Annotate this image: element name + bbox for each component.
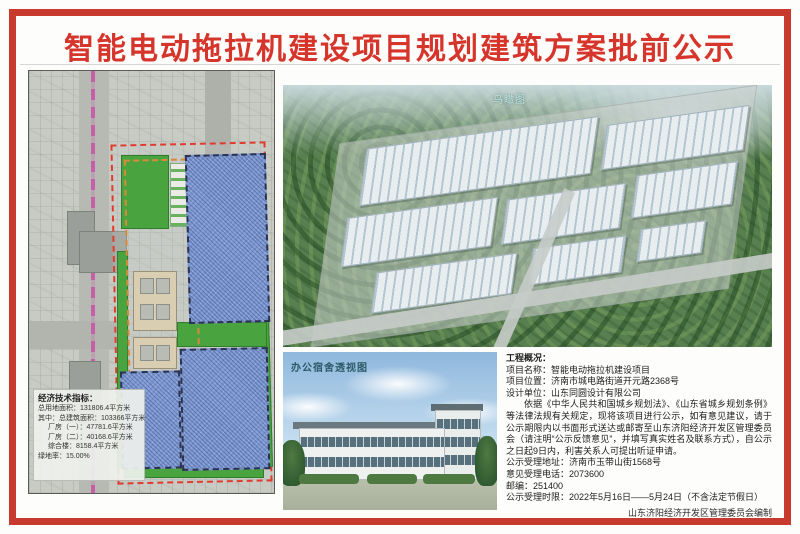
office-court-upper bbox=[133, 271, 177, 331]
factory-roof bbox=[631, 161, 738, 218]
issuing-authority: 山东济阳经济开发区管理委员会编制 bbox=[506, 507, 772, 519]
legend-line: 厂房（二）：40168.6平方米 bbox=[38, 433, 140, 443]
window-band bbox=[300, 437, 444, 447]
office-building bbox=[299, 428, 445, 480]
window-band bbox=[300, 457, 444, 467]
project-notice-text: 工程概况： 项目名称：智能电动拖拉机建设项目 项目位置：济南市城电路街道开元路2… bbox=[506, 353, 772, 519]
court-unit bbox=[140, 278, 154, 294]
aerial-label: 鸟瞰图 bbox=[493, 91, 526, 106]
legend-line: 总用地面积：131806.4平方米 bbox=[38, 404, 140, 414]
design-unit-line: 设计单位：山东同圆设计有限公司 bbox=[506, 388, 772, 400]
bush-row bbox=[299, 474, 359, 484]
notice-paragraph: 依据《中华人民共和国城乡规划法》、《山东省城乡规划条例》等法律法规有关规定，现将… bbox=[506, 399, 772, 457]
project-location-line: 项目位置：济南市城电路街道开元路2368号 bbox=[506, 376, 772, 388]
project-name-line: 项目名称：智能电动拖拉机建设项目 bbox=[506, 365, 772, 377]
court-unit bbox=[140, 304, 154, 320]
office-court-lower bbox=[133, 337, 177, 369]
legend-title: 经济技术指标： bbox=[38, 393, 140, 404]
phone-line: 意见受理电话：2073600 bbox=[506, 469, 772, 481]
legend-line: 其中：总建筑面积：103366平方米 bbox=[38, 414, 140, 424]
legend-line: 综合楼：8158.4平方米 bbox=[38, 442, 140, 452]
page-title: 智能电动拖拉机建设项目规划建筑方案批前公示 bbox=[0, 24, 800, 68]
legend-line: 厂房（一）：47781.6平方米 bbox=[38, 423, 140, 433]
tree bbox=[475, 436, 497, 486]
cloud bbox=[283, 392, 353, 422]
divider-line bbox=[20, 64, 780, 65]
workshop-two-footprint bbox=[180, 347, 271, 471]
workshop-one-footprint bbox=[185, 153, 270, 324]
factory-roof bbox=[601, 105, 750, 170]
court-unit bbox=[140, 345, 154, 361]
bush-row bbox=[367, 474, 417, 484]
factory-roof bbox=[636, 220, 706, 262]
period-line: 公示受理时限：2022年5月16日——5月24日（不含法定节假日） bbox=[506, 492, 772, 504]
court-unit bbox=[156, 304, 170, 320]
overview-heading: 工程概况： bbox=[506, 353, 772, 365]
aerial-rendering-image: 鸟瞰图 bbox=[283, 85, 772, 347]
bush-row bbox=[423, 474, 475, 484]
postcode-line: 邮编：251400 bbox=[506, 481, 772, 493]
technical-indicators-legend: 经济技术指标： 总用地面积：131806.4平方米 其中：总建筑面积：10336… bbox=[33, 389, 145, 481]
site-plan-image: 经济技术指标： 总用地面积：131806.4平方米 其中：总建筑面积：10336… bbox=[28, 70, 275, 494]
perspective-rendering-image: 办公宿舍透视图 bbox=[283, 352, 497, 510]
notice-poster: 智能电动拖拉机建设项目规划建筑方案批前公示 bbox=[0, 0, 800, 534]
court-unit bbox=[156, 278, 170, 294]
factory-roof bbox=[340, 197, 497, 268]
court-unit bbox=[156, 345, 170, 361]
perspective-label: 办公宿舍透视图 bbox=[291, 359, 368, 374]
legend-line: 绿地率：15.00% bbox=[38, 452, 140, 462]
access-road bbox=[29, 321, 119, 349]
address-line: 公示受理地址：济南市玉带山街1568号 bbox=[506, 457, 772, 469]
